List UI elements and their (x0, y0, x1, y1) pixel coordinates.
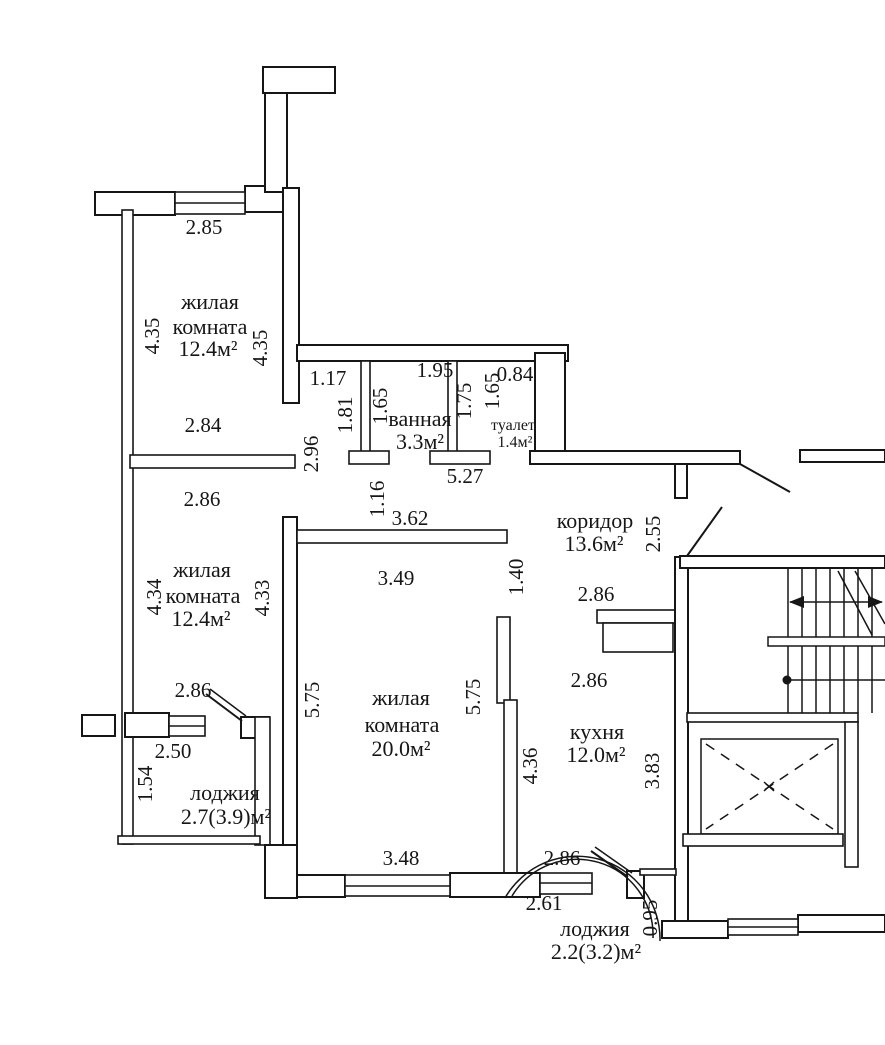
room-name: лоджия (560, 916, 630, 941)
elevator-shaft-right (845, 722, 858, 867)
wall (297, 875, 345, 897)
dim-label: 1.81 (333, 397, 357, 434)
floor-plan-page: 2.85 2.84 1.17 1.95 0.84 5.27 3.62 2.86 … (0, 0, 885, 1045)
dim-label: 4.35 (140, 318, 164, 355)
wall (349, 451, 389, 464)
dim-label: 2.86 (571, 668, 608, 692)
dim-label: 2.86 (175, 678, 212, 702)
floor-plan-drawing: 2.85 2.84 1.17 1.95 0.84 5.27 3.62 2.86 … (0, 0, 885, 1045)
room-area: 12.4м² (171, 606, 230, 631)
vent-shaft (603, 623, 673, 652)
stair-arrowhead-left (789, 596, 804, 608)
wall (504, 700, 517, 880)
room-name: комната (365, 712, 440, 737)
dim-label: 4.36 (518, 748, 542, 785)
wall (95, 192, 175, 215)
dim-label: 1.40 (504, 559, 528, 596)
dim-label: 3.48 (383, 846, 420, 870)
wall (530, 451, 740, 464)
room-area: 3.3м² (396, 429, 444, 454)
dim-label: 5.75 (461, 679, 485, 716)
room-name: кухня (570, 719, 624, 744)
dim-label: 0.95 (638, 900, 662, 937)
wall (82, 715, 115, 736)
wall (597, 610, 675, 623)
wall (640, 869, 676, 875)
dim-label: 2.55 (641, 516, 665, 553)
dim-label: 4.34 (142, 578, 166, 615)
stair-flight-slash (838, 571, 872, 635)
room-area: 2.2(3.2)м² (551, 939, 642, 964)
wall (297, 530, 507, 543)
room-area: 12.4м² (178, 336, 237, 361)
stair-start-dot (783, 676, 792, 685)
wall (798, 915, 885, 932)
dim-label: 1.95 (417, 358, 454, 382)
dim-label: 3.62 (392, 506, 429, 530)
room-area: 13.6м² (564, 531, 623, 556)
wall (122, 210, 133, 844)
room-name: коридор (557, 508, 634, 533)
room-name: туалет (491, 417, 535, 434)
wall (497, 617, 510, 703)
wall (265, 93, 287, 192)
room-name: жилая (172, 557, 231, 582)
dim-label: 2.61 (526, 891, 563, 915)
dim-label: 1.17 (310, 366, 347, 390)
wall (265, 845, 297, 898)
room-name: ванная (388, 406, 451, 431)
dim-label: 2.50 (155, 739, 192, 763)
room-area: 12.0м² (566, 742, 625, 767)
loggia-door-leaf (206, 694, 242, 721)
room-name: жилая (180, 289, 239, 314)
entry-door-leaf (687, 507, 722, 556)
wall (535, 353, 565, 453)
wall (130, 455, 295, 468)
dim-label: 1.16 (365, 481, 389, 518)
dim-label: 2.84 (185, 413, 222, 437)
stair-landing-edge (768, 637, 885, 646)
wall (800, 450, 885, 462)
dim-label: 3.49 (378, 566, 415, 590)
wall (680, 556, 885, 568)
wall (283, 188, 299, 403)
wall (675, 464, 687, 498)
wall (662, 921, 728, 938)
room-area: 20.0м² (371, 736, 430, 761)
elevator (683, 713, 858, 867)
wall (125, 713, 169, 737)
dim-label: 4.33 (250, 580, 274, 617)
elevator-shaft-top (687, 713, 858, 722)
dim-label: 1.54 (133, 765, 157, 802)
wall (675, 557, 688, 923)
entry-doorway-line (740, 464, 790, 492)
dim-label: 5.27 (447, 464, 484, 488)
dim-label: 2.86 (184, 487, 221, 511)
dim-label: 1.75 (452, 383, 476, 420)
wall (263, 67, 335, 93)
loggia-door-leaf (210, 689, 246, 716)
room-area: 2.7(3.9)м² (181, 804, 272, 829)
dim-label: 1.65 (480, 373, 504, 410)
room-area: 1.4м² (498, 434, 533, 451)
dim-label: 4.35 (248, 330, 272, 367)
kitchen-loggia-door-leaf (591, 851, 628, 877)
dim-label: 2.96 (299, 436, 323, 473)
wall (283, 517, 297, 880)
elevator-shaft-bottom (683, 834, 843, 846)
room-name: комната (166, 583, 241, 608)
dim-label: 3.83 (640, 753, 664, 790)
stairs (768, 568, 885, 713)
room-name: жилая (371, 685, 430, 710)
dim-label: 2.86 (544, 846, 581, 870)
dim-label: 2.86 (578, 582, 615, 606)
loggia-parapet (118, 836, 260, 844)
room-name: лоджия (190, 780, 260, 805)
dim-label: 2.85 (186, 215, 223, 239)
dim-label: 5.75 (300, 682, 324, 719)
